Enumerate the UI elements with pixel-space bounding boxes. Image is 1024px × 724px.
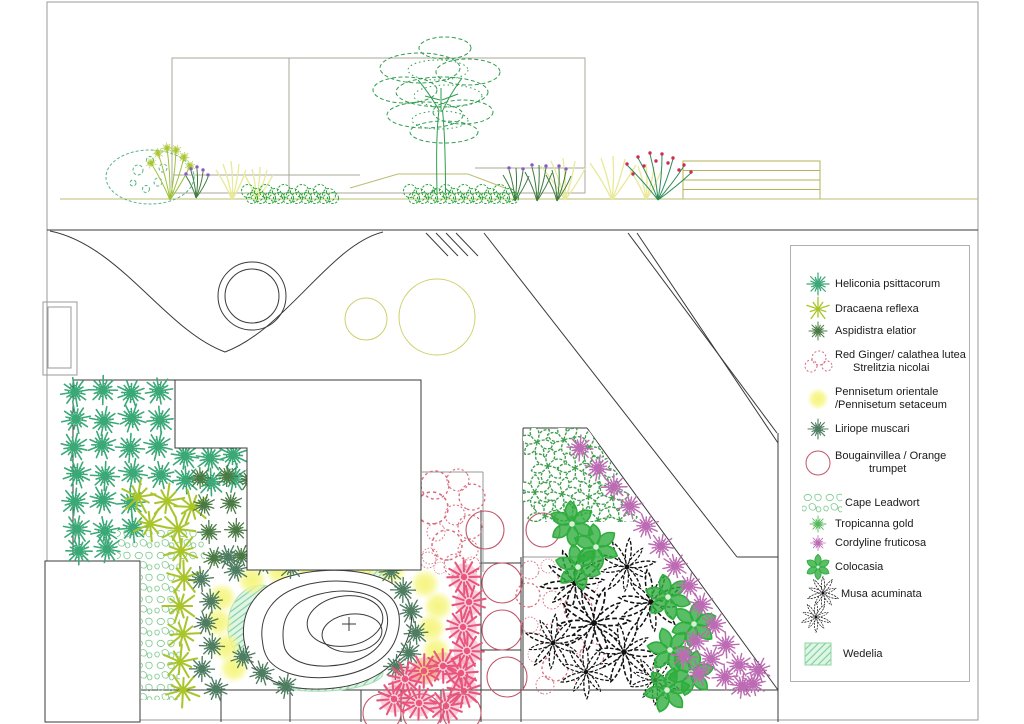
legend-item-aspidistra: Aspidistra elatior: [801, 320, 967, 342]
berm-line: [350, 174, 505, 188]
garden-path-curve: [50, 231, 383, 352]
legend-item-cordyline: Cordyline fruticosa: [801, 533, 967, 553]
tropicanna-icon: [801, 514, 835, 534]
legend-item-dracaena: Dracaena reflexa: [801, 298, 967, 320]
musa-icon: [801, 577, 841, 633]
tree-circle-inner: [225, 269, 279, 323]
legend-item-wedelia: Wedelia: [801, 640, 967, 668]
legend-item-musa: Musa acuminata: [801, 576, 967, 634]
bougainvillea-icon: [801, 449, 835, 477]
planter-box-inner: [48, 307, 71, 368]
groundcover-elevation-right: [404, 185, 519, 204]
legend-item-bougainvillea: Bougainvillea / Orangetrumpet: [801, 447, 967, 479]
legend-panel: Heliconia psittacorum Dracaena reflexa A…: [790, 245, 970, 682]
legend-label-line2: Strelitzia nicolai: [835, 362, 966, 375]
legend-label: Pennisetum orientale: [835, 386, 938, 398]
legend-label: Aspidistra elatior: [835, 325, 916, 338]
heliconia-icon: [801, 271, 835, 297]
legend-label: Cordyline fruticosa: [835, 537, 926, 550]
landscape-plan-sheet: { "document": { "type": "landscape garde…: [0, 0, 1024, 724]
wedelia-icon: [801, 641, 835, 667]
pennisetum-icon: [801, 386, 835, 412]
hedge-elevation: [683, 161, 820, 199]
legend-label: Liriope muscari: [835, 423, 910, 436]
legend-label: Heliconia psittacorum: [835, 278, 940, 291]
legend-item-liriope: Liriope muscari: [801, 418, 967, 440]
plan-plantings: [54, 371, 775, 724]
legend-label: Tropicanna gold: [835, 518, 913, 531]
legend-label: Bougainvillea / Orange: [835, 450, 946, 462]
canopy-circle-large: [399, 279, 475, 355]
cordyline-icon: [801, 533, 835, 553]
legend-label-line2: /Pennisetum setaceum: [835, 399, 947, 412]
legend-item-cape-leadwort: Cape Leadwort: [801, 491, 967, 515]
legend-label: Wedelia: [835, 648, 883, 661]
tree-elevation: [373, 37, 500, 193]
legend-label: Red Ginger/ calathea lutea: [835, 349, 966, 361]
legend-item-red-ginger: Red Ginger/ calathea luteaStrelitzia nic…: [801, 346, 967, 378]
elevation-view: [60, 37, 978, 204]
red-ginger-icon: [801, 347, 835, 377]
legend-item-tropicanna: Tropicanna gold: [801, 514, 967, 534]
path-steps-hatch: [426, 233, 478, 256]
legend-item-heliconia: Heliconia psittacorum: [801, 273, 967, 295]
legend-item-pennisetum: Pennisetum orientale/Pennisetum setaceum: [801, 383, 967, 415]
cape-leadwort-icon: [801, 492, 845, 514]
groundcover-elevation-left: [242, 185, 339, 204]
liriope-icon: [801, 416, 835, 442]
tree-circle-outer: [218, 262, 286, 330]
planter-rectangle: [45, 561, 140, 722]
flower-dots-elevation: [184, 151, 692, 176]
legend-label: Cape Leadwort: [845, 497, 920, 510]
legend-label: Colocasia: [835, 561, 883, 574]
legend-label-line2: trumpet: [835, 463, 946, 476]
legend-label: Musa acuminata: [841, 588, 922, 601]
legend-label: Dracaena reflexa: [835, 303, 919, 316]
palm-elevation: [144, 142, 197, 200]
aspidistra-icon: [801, 318, 835, 344]
canopy-circle-small: [345, 298, 387, 340]
grass-clumps-elevation: [186, 154, 691, 201]
